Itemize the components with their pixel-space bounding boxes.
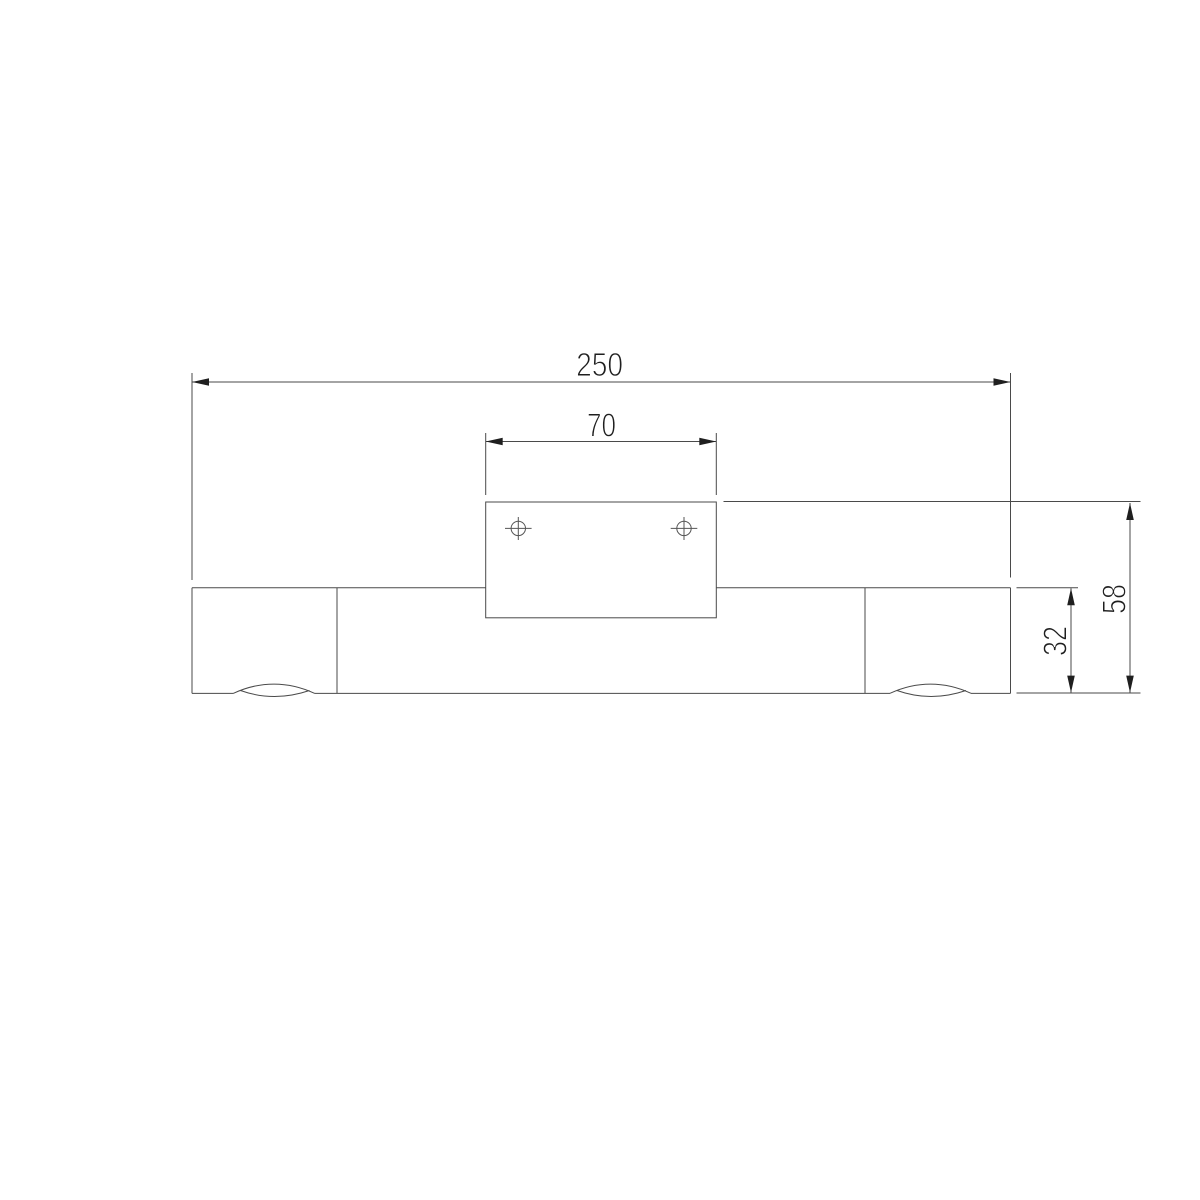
svg-text:58: 58 <box>1097 584 1134 614</box>
svg-text:250: 250 <box>576 347 623 384</box>
svg-text:70: 70 <box>587 408 616 445</box>
svg-text:32: 32 <box>1038 626 1075 656</box>
